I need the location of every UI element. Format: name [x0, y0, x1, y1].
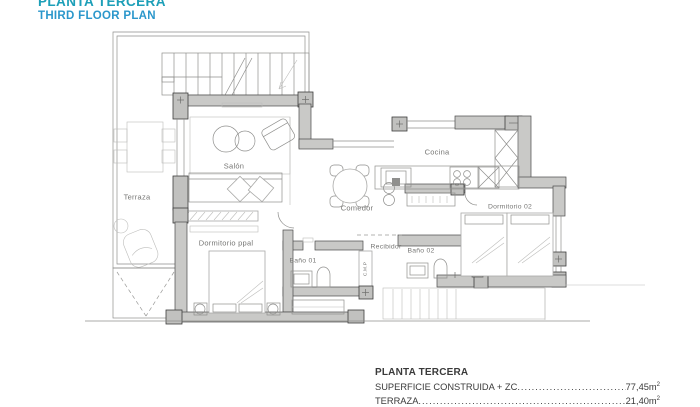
upper-staircase	[162, 53, 309, 95]
floor-plan-page: PLANTA TERCERA THIRD FLOOR PLAN Terraza …	[0, 0, 700, 400]
room-label-dormitorio-ppal: Dormitorio ppal	[199, 239, 254, 248]
lower-staircase	[383, 288, 545, 319]
floor-plan-drawing	[0, 0, 700, 400]
page-header: PLANTA TERCERA THIRD FLOOR PLAN	[38, 0, 166, 23]
terrace-void-dashes	[117, 272, 174, 316]
area-legend: PLANTA TERCERA SUPERFICIE CONSTRUIDA + Z…	[375, 367, 660, 407]
bathroom1-fixtures	[291, 267, 330, 287]
room-label-bano02: Baño 02	[407, 248, 434, 255]
room-label-comedor: Comedor	[341, 204, 374, 213]
legend-label: TERRAZA	[375, 395, 418, 407]
legend-row-terrace-area: TERRAZA.................................…	[375, 393, 660, 407]
room-label-salon: Salón	[224, 162, 244, 171]
salon-furniture	[189, 103, 296, 205]
legend-value: 77,45m2	[626, 379, 660, 393]
room-label-cmp-shaft: C.M.P	[364, 262, 369, 276]
plan-title-es: PLANTA TERCERA	[38, 0, 166, 10]
room-label-cocina: Cocina	[425, 148, 450, 157]
legend-value: 21,40m2	[626, 393, 660, 407]
comedor-furniture	[330, 165, 369, 207]
legend-leader-dots: ........................................…	[517, 381, 625, 393]
legend-label: SUPERFICIE CONSTRUIDA + ZC	[375, 381, 517, 393]
legend-row-built-area: SUPERFICIE CONSTRUIDA + ZC..............…	[375, 379, 660, 393]
kitchen-fittings	[375, 130, 519, 206]
bedroom2-furniture	[461, 213, 553, 276]
room-label-recibidor: Recibidor	[371, 244, 402, 251]
room-label-dormitorio02: Dormitorio 02	[488, 204, 532, 211]
legend-leader-dots: ........................................…	[418, 395, 625, 407]
room-label-bano01: Baño 01	[289, 258, 316, 265]
legend-title: PLANTA TERCERA	[375, 367, 660, 378]
plan-title-en: THIRD FLOOR PLAN	[38, 10, 166, 23]
room-label-terraza: Terraza	[124, 193, 151, 202]
